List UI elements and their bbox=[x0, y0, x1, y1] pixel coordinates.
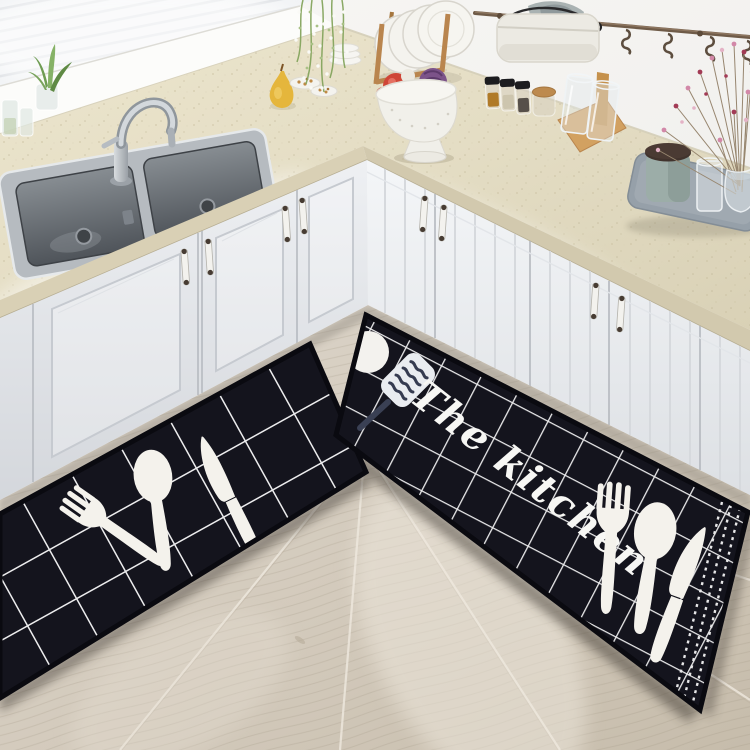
flower-vase bbox=[725, 169, 750, 212]
kitchen-photo: The kitchen bbox=[0, 0, 750, 750]
faucet-spout bbox=[171, 131, 172, 144]
glass-bottle-small bbox=[20, 108, 33, 136]
cork-jar bbox=[533, 87, 556, 116]
canister bbox=[645, 143, 691, 202]
